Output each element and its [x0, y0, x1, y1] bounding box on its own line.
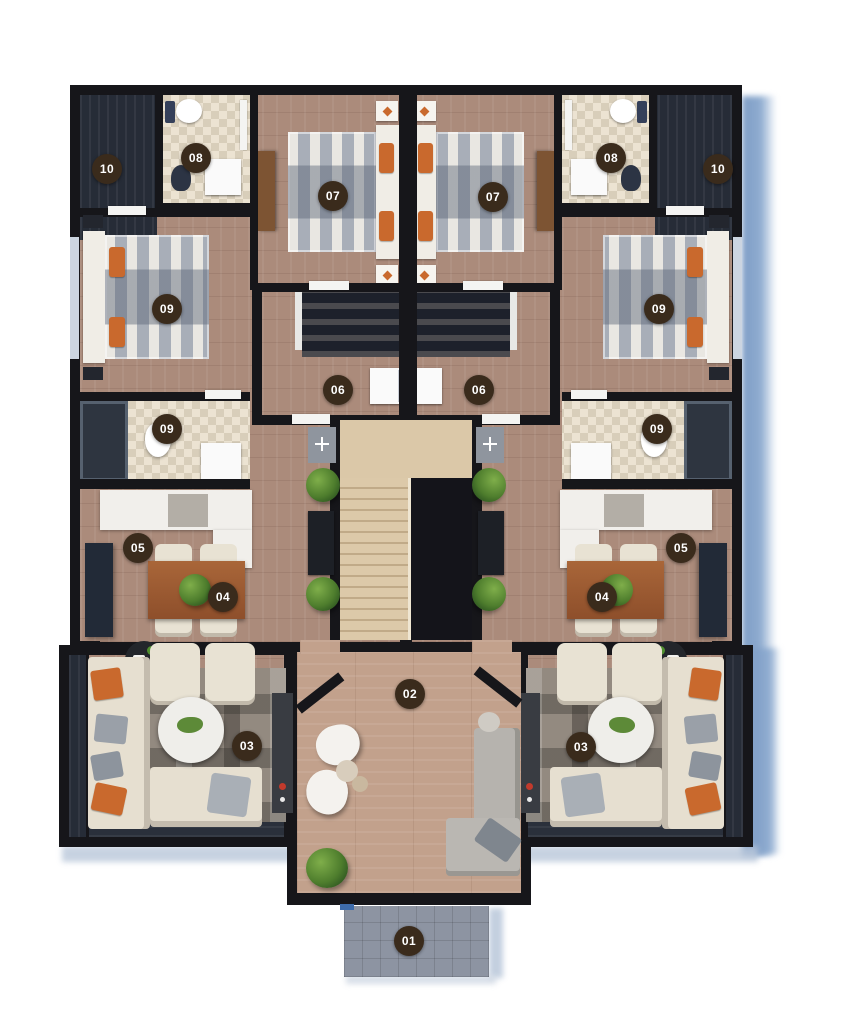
- indicator-red: [526, 783, 533, 790]
- kitchen-island: [85, 543, 113, 637]
- console-table: [308, 511, 334, 575]
- bed-09-headboard: [707, 231, 729, 363]
- door-threshold: [482, 414, 520, 424]
- table-plant: [179, 574, 211, 606]
- plus-mark: [321, 437, 323, 451]
- building-shadow-wing-right: [753, 648, 781, 854]
- hall-wall-left: [252, 292, 262, 425]
- media-unit: [519, 693, 540, 813]
- door-threshold: [292, 414, 330, 424]
- balcony-10-wall: [649, 95, 657, 215]
- side-table-round: [352, 776, 368, 792]
- sink-08: [571, 159, 607, 195]
- toilet-icon: [610, 99, 636, 123]
- bed-09-pillow: [687, 247, 703, 277]
- door-threshold: [666, 206, 704, 215]
- sink-08: [205, 159, 241, 195]
- nightstand: [414, 265, 436, 285]
- stair-void: [411, 478, 472, 640]
- door-threshold: [108, 206, 146, 215]
- shower-09: [684, 401, 732, 481]
- kitchen-cooktop: [168, 494, 208, 527]
- toilet-tank: [637, 101, 647, 123]
- armchair: [205, 643, 255, 705]
- nightstand-dark: [709, 215, 729, 228]
- floor-plan-canvas: 0102030304040505060607070808090909091010: [0, 0, 847, 1024]
- bedroom-09-window: [70, 237, 79, 359]
- bathroom-09-wall-bottom: [562, 479, 732, 489]
- wall-stub: [517, 643, 557, 653]
- sofa-cushion-gray: [90, 751, 124, 782]
- bathroom-08-accessory: [621, 165, 641, 191]
- corridor-bridge: [472, 640, 512, 654]
- bedroom-09-wall-top: [562, 208, 732, 217]
- plant: [472, 577, 506, 611]
- center-dividing-wall: [399, 85, 417, 425]
- door-threshold: [205, 390, 241, 399]
- dresser-07: [537, 151, 554, 231]
- bed-07-pillow: [379, 211, 394, 241]
- bed-09-pillow: [109, 247, 125, 277]
- door-threshold: [571, 390, 607, 399]
- balcony-10-wall: [155, 95, 163, 215]
- sofa-cushion-gray: [688, 751, 722, 782]
- sofa-cushion-gray: [684, 713, 719, 744]
- bed-09-headboard: [83, 231, 105, 363]
- table-plant: [601, 574, 633, 606]
- sofa-sculpture: [478, 712, 500, 732]
- closet-wall-white: [510, 292, 517, 350]
- nightstand: [376, 101, 398, 121]
- indicator-white: [280, 797, 285, 802]
- armchair: [557, 643, 607, 705]
- entrance-pad: [344, 906, 489, 977]
- kitchen-cooktop: [604, 494, 644, 527]
- balcony-side: [725, 655, 743, 837]
- chaise-cushion: [206, 772, 251, 817]
- closet-wall-white: [295, 292, 302, 350]
- plus-mark: [489, 437, 491, 451]
- utility-pad: [476, 427, 504, 463]
- bed-07-pillow: [379, 143, 394, 173]
- bed-07-pillow: [418, 143, 433, 173]
- indicator-red: [279, 783, 286, 790]
- media-unit: [272, 693, 293, 813]
- door-threshold: [240, 100, 247, 150]
- plant: [306, 577, 340, 611]
- door-threshold: [565, 100, 572, 150]
- nightstand-dark: [83, 215, 103, 228]
- building-shadow-bottom-left: [62, 846, 300, 862]
- console-table: [478, 511, 504, 575]
- hall-wall-left: [550, 292, 560, 425]
- chaise-cushion: [560, 772, 605, 817]
- corridor-bridge: [300, 640, 340, 654]
- door-threshold: [463, 281, 503, 290]
- wall-stub: [70, 641, 100, 652]
- corridor-plant: [306, 848, 348, 888]
- sofa-cushion-gray: [94, 713, 129, 744]
- toilet-tank: [165, 101, 175, 123]
- closet: [408, 292, 510, 357]
- armchair: [612, 643, 662, 705]
- stairs: [340, 478, 410, 640]
- sink-09: [571, 443, 611, 479]
- bedroom-09-window: [733, 237, 742, 359]
- dresser-07: [258, 151, 275, 231]
- bed-07-pillow: [418, 211, 433, 241]
- sink-09: [201, 443, 241, 479]
- utility-pad: [308, 427, 336, 463]
- plant: [472, 468, 506, 502]
- sofa-cushion-orange: [688, 667, 722, 701]
- bathroom-08-wall-right: [250, 95, 258, 290]
- bed-07-runner: [436, 132, 524, 252]
- building-shadow-bottom-right: [518, 846, 758, 862]
- bathroom-08-accessory: [171, 165, 191, 191]
- closet: [302, 292, 404, 357]
- plant: [306, 468, 340, 502]
- nightstand: [376, 265, 398, 285]
- entrance-mat: [340, 904, 354, 910]
- nightstand: [414, 101, 436, 121]
- bedroom-09-wall-top: [80, 208, 250, 217]
- bed-09-pillow: [109, 317, 125, 347]
- shower-09: [80, 401, 128, 481]
- toilet-icon: [641, 423, 667, 457]
- door-threshold: [309, 281, 349, 290]
- indicator-white: [527, 797, 532, 802]
- nightstand-dark: [709, 367, 729, 380]
- kitchen-island: [699, 543, 727, 637]
- bathroom-09-wall-bottom: [80, 479, 250, 489]
- bathroom-08-wall-right: [554, 95, 562, 290]
- balcony-side: [69, 655, 87, 837]
- sofa-cushion-orange: [90, 667, 124, 701]
- toilet-icon: [176, 99, 202, 123]
- entrance-pad-shadow: [489, 908, 503, 978]
- wall-stub: [712, 641, 742, 652]
- coffee-table-greens: [609, 717, 635, 733]
- wall-stub: [255, 643, 295, 653]
- bed-07-runner: [288, 132, 376, 252]
- armchair: [150, 643, 200, 705]
- toilet-icon: [145, 423, 171, 457]
- stair-landing: [340, 420, 472, 478]
- bed-09-pillow: [687, 317, 703, 347]
- nightstand-dark: [83, 367, 103, 380]
